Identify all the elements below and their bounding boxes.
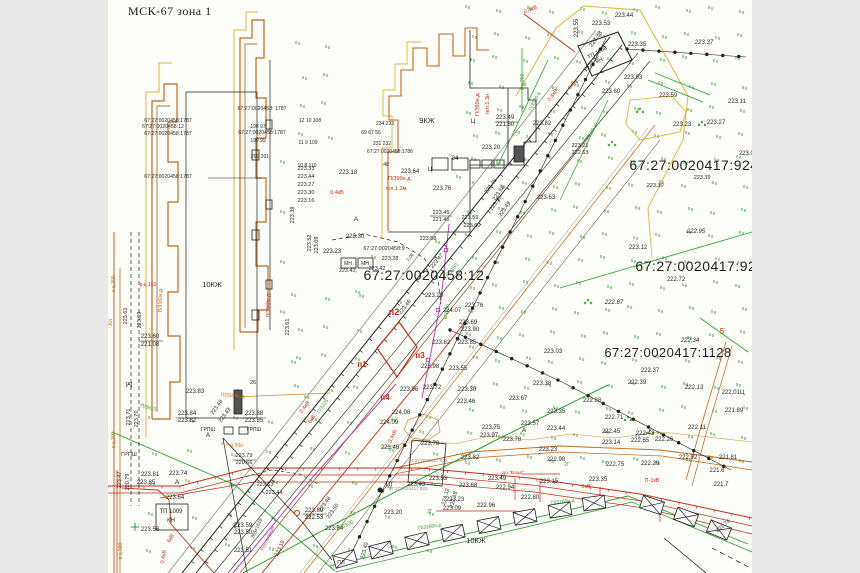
map-label: 223.44 [298, 174, 315, 180]
map-label: 223.64 [166, 495, 185, 501]
map-label: 223.55 [449, 366, 468, 372]
map-label: 48 [383, 162, 389, 168]
map-label: 222.96 [477, 503, 496, 509]
map-label: о.ц.300 [111, 431, 117, 448]
map-label: 222.39 [628, 380, 647, 386]
map-label: 69 67 56 [361, 130, 381, 136]
map-label: 223.61 [123, 308, 129, 325]
map-label: 223.97 [480, 433, 499, 439]
map-label: П-1кВ [645, 478, 660, 484]
map-label: 222.92 [679, 455, 698, 461]
map-label: 223.35 [547, 409, 566, 415]
map-label: 222.98 [547, 457, 566, 463]
map-label: 223.19 [274, 540, 287, 558]
map-label: 223.98 [421, 364, 440, 370]
map-label: П/3500-в [528, 91, 543, 112]
map-label: 67:27:0020417:927 [635, 258, 764, 274]
map-label: 223.69 [459, 320, 478, 326]
map-label: 222.37 [641, 368, 660, 374]
map-label: 223.74 [169, 471, 188, 477]
map-label: 223.44 [547, 426, 566, 432]
map-label: п1 [357, 360, 367, 369]
map-label: 223.55 [574, 18, 580, 37]
map-label: 223.82 [178, 418, 197, 424]
map-label: до "Вода" [502, 470, 524, 476]
map-label: 223.23 [673, 122, 692, 128]
map-label: 223.71 [126, 409, 132, 426]
map-label: в.ц.300 [118, 542, 124, 559]
map-label: 223.20 [482, 145, 501, 151]
map-label: 223.60 [602, 89, 621, 95]
map-label: 223.21 [572, 143, 589, 149]
map-label: 223.72 [423, 385, 442, 391]
map-label: 67:27:0020458:12 [364, 267, 485, 283]
map-label: гел.1.3н [485, 94, 491, 114]
map-label: 223.84 [178, 411, 197, 417]
map-label: 222.11 [688, 425, 707, 431]
map-label: 67:27:0020417:922 [389, 486, 428, 491]
map-title: МСК-67 зона 1 [128, 4, 212, 19]
construction-wall-sections [333, 495, 732, 568]
map-label: 67:27:0020458:12 [142, 124, 184, 130]
map-label: 222.95 [686, 229, 706, 235]
map-label: 5 [720, 327, 725, 336]
map-label: 223.59 [462, 215, 479, 221]
map-label: 222.72 [667, 277, 686, 283]
map-label: 223.39 [693, 175, 711, 181]
map-label: 223.39 [290, 207, 296, 224]
map-label: 223.28 [382, 256, 399, 262]
map-label: 223.35 [589, 477, 608, 483]
map-label: 223.81 [141, 472, 160, 478]
map-label: 223.76 [433, 186, 452, 192]
map-label: 221.81 [719, 455, 738, 461]
map-label: 223.79 [236, 453, 253, 459]
map-label: 224.08 [392, 410, 411, 416]
map-label: ПЛ [337, 560, 345, 566]
map-label: 223.85 [137, 480, 156, 486]
map-label: 223.23 [446, 497, 465, 503]
map-label: 223.60 [141, 334, 160, 340]
map-label: 223.53 [592, 21, 611, 27]
map-label: Ц [471, 119, 476, 125]
map-label: 223.47 [117, 472, 123, 489]
map-label: 223.30 [346, 234, 365, 240]
map-label: 223.09 [443, 506, 462, 512]
map-label: 222.45 [602, 429, 621, 435]
map-label: 222.80 [521, 495, 540, 501]
map-label: П/3160н.д [418, 522, 442, 531]
map-label: 220.79 [125, 474, 131, 491]
map-label: 6кВ [581, 484, 590, 490]
map-label: 222.71 [605, 415, 624, 421]
map-label: 223.33 [298, 166, 315, 172]
map-label: 67:27:0020458:1786 [367, 149, 413, 155]
map-label: 223.78 [421, 441, 440, 447]
map-label: 223.30 [646, 183, 665, 189]
map-label: 224.09 [380, 420, 399, 426]
map-label: в.ц.200 [520, 73, 526, 90]
map-label: 223.68 [459, 483, 478, 489]
map-label: 223.44 [266, 490, 283, 496]
map-label: 222.75 [606, 462, 625, 468]
map-label: 221.40 [433, 217, 450, 223]
map-label: гел.1.3м [386, 186, 407, 192]
map-label: П/3160н.д. [158, 288, 164, 313]
map-label: 2Г [564, 462, 570, 468]
map-label: п3 [415, 351, 425, 360]
map-label: 223.96 [400, 387, 419, 393]
map-label: А [522, 427, 527, 434]
map-label: 223.85 [458, 340, 477, 346]
map-label: 10КЖ [202, 280, 222, 289]
map-label: 223.75 [482, 425, 501, 431]
map-label: 220.66 [236, 460, 253, 466]
map-label: П/3610 [140, 403, 157, 413]
map-label: 0,4кВ [160, 549, 168, 564]
map-label: П/390н.д. [388, 176, 412, 182]
map-label: 223.49 [488, 476, 507, 482]
map-label: Ц [428, 167, 433, 173]
map-label: 223.52 [307, 235, 313, 252]
map-label: 223.42, [339, 268, 358, 274]
map-label: 222.01Ц [722, 390, 745, 396]
cadastral-map-canvas[interactable]: 67:27:0020458:178767:27:0020458:1267:27:… [0, 0, 860, 573]
map-label: п4 [380, 393, 390, 402]
map-label: 223.46 [457, 399, 476, 405]
map-label: 67:27:0020417:1128 [604, 345, 731, 360]
map-label: 223.35 [628, 42, 647, 48]
map-label: 223.43 [218, 407, 233, 424]
map-label: 223.27 [707, 120, 726, 126]
map-label: 221.08 [141, 342, 160, 348]
map-label: 223.38 [533, 381, 552, 387]
map-label: П/3500-в [583, 123, 599, 144]
map-label: 67:27:0020458:9 [363, 246, 404, 252]
map-label: 223.59 [659, 93, 678, 99]
map-label: 223.64 [401, 169, 420, 175]
map-label: 223.50 [234, 530, 253, 536]
map-label: П/390н.д. [475, 92, 481, 116]
map-label: П/3160н.д. [221, 392, 246, 400]
map-label: 223.14 [602, 440, 621, 446]
map-label: 223.11 [728, 99, 747, 105]
map-label: 223.63 [257, 482, 274, 488]
map-label: 234 233 [376, 121, 394, 127]
map-label: 10КЖ [466, 536, 486, 545]
map-label: 9КЖ [419, 116, 435, 125]
map-label: 223.53 [429, 476, 448, 482]
map-label: МН [344, 261, 352, 267]
map-label: 223.09 [314, 237, 320, 254]
map-label: 6кВ [166, 533, 176, 544]
map-label: [А] [126, 382, 133, 388]
map-label: 222.26 [655, 437, 674, 443]
map-label: 221.60 [496, 122, 515, 128]
map-label: 221.7 [713, 482, 729, 488]
map-label: 1.06 [405, 252, 415, 262]
map-label: 222.65 [631, 438, 650, 444]
map-label: П/3225 [316, 398, 330, 415]
map-label: А [175, 479, 180, 486]
map-label: 223.30 [458, 387, 477, 393]
map-label: 223.63 [537, 195, 556, 201]
map-label: 221.89 [725, 408, 744, 414]
map-label: 12 10 108 [299, 118, 321, 124]
map-label: 223.37 [694, 40, 714, 46]
map-label: 223.82 [533, 121, 552, 127]
map-label: 222.13 [684, 385, 704, 391]
map-label: 223.93 [624, 75, 643, 81]
map-label: ГРПШ [121, 452, 137, 458]
map-label: КН [167, 518, 175, 524]
map-label: 67:27:0020458: 1787 [237, 106, 286, 112]
map-label: П/3160н.д. [266, 293, 272, 318]
map-label: 223.60 [464, 223, 481, 229]
map-label: к, в.ц.300 [221, 441, 243, 449]
map-label: А [354, 216, 359, 223]
map-label: ТП 1009 [160, 509, 184, 515]
map-label: 223.46 [381, 445, 400, 451]
map-label: р.ц.150 [140, 282, 157, 288]
map-label: 0,4кВ [523, 5, 538, 16]
map-label: 231 232 [373, 141, 391, 147]
map-label: 223.29 [425, 293, 444, 299]
map-labels: 67:27:0020458:178767:27:0020458:1267:27:… [108, 5, 765, 566]
map-label: 223.88 [245, 411, 264, 417]
map-label: 0,4кВ [387, 429, 398, 444]
map-label: 223.82 [432, 340, 451, 346]
map-label: 24 [451, 155, 459, 162]
map-label: 223.15 [540, 479, 559, 485]
map-label: 222.29 [641, 461, 660, 467]
map-label: 6кВ [307, 414, 317, 425]
map-label: 223.45 [433, 210, 450, 216]
map-label: Кл [108, 319, 114, 325]
map-label: 199 99 [250, 138, 266, 144]
map-label: 26 [250, 380, 256, 386]
map-label: 223.90 [461, 327, 480, 333]
map-label: 223.44 [615, 13, 634, 19]
map-label: 200 201 [251, 154, 269, 160]
map-label: 223.83 [186, 389, 205, 395]
map-label: 2Г [427, 509, 433, 515]
map-label: 223.59 [137, 312, 143, 329]
map-label: Ростелеком [260, 525, 277, 551]
map-label: 223.23 [323, 249, 342, 255]
map-label: 0,4кВ [330, 190, 344, 196]
map-label: 67:27:0020458:1787 [144, 131, 192, 137]
map-label: 222.88 [583, 398, 602, 404]
map-label: 223.51 [234, 548, 253, 554]
map-label: 223.03 [544, 349, 563, 355]
map-label: 223.70 [134, 411, 140, 428]
map-label: 223.58 [420, 236, 437, 242]
map-label: 223.61 [285, 319, 291, 336]
map-label: 223.20 [384, 510, 403, 516]
map-label: 223.12 [629, 245, 648, 251]
map-label: 223.49 [496, 115, 515, 121]
map-label: А [206, 432, 211, 439]
map-label: 11 9 109 [298, 140, 317, 146]
map-label: 67:27:0020417:928 [409, 458, 448, 463]
map-label: 223.30 [298, 190, 315, 196]
map-label: 67:27:0020458:1787 [238, 130, 286, 136]
map-label: 222.63 [572, 150, 589, 156]
map-label: ГРПШ [247, 427, 262, 433]
map-label: 223.82 [461, 455, 480, 461]
map-label: 223.67 [509, 396, 528, 402]
map-label: 223.78 [503, 437, 522, 443]
map-label: 223.76 [465, 303, 484, 309]
map-label: 223.85 [245, 418, 264, 424]
map-label: 223.56 [141, 527, 160, 533]
map-label: 67:27:0020417:924 [629, 157, 758, 173]
map-label: о.ц.300 [111, 275, 117, 292]
map-label: 223.23 [539, 447, 558, 453]
map-label: 223.18 [339, 170, 358, 176]
map-label: 223.27 [298, 182, 315, 188]
map-label: 222.34 [680, 338, 700, 344]
map-label: 67:27:0020458:1787 [144, 174, 192, 180]
map-viewport: МСК-67 зона 1 67:27:0020458:178767:27:00… [0, 0, 860, 573]
map-label: 223.16 [298, 198, 315, 204]
map-label: 221.6 [709, 468, 725, 474]
map-label: 222.53 [305, 515, 324, 521]
map-label: 222.87 [604, 300, 624, 306]
map-label: 222.43 [636, 431, 655, 437]
utility-and-building-lines [108, 6, 760, 573]
map-label: 223.59 [234, 523, 253, 529]
map-label: 222.94 [496, 485, 515, 491]
